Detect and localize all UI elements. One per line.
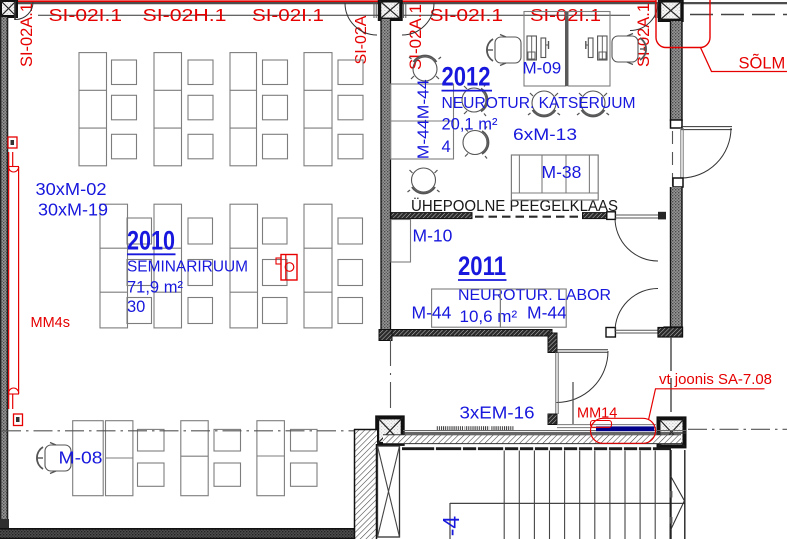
svg-text:SEMINARIRUUM: SEMINARIRUUM: [127, 259, 248, 276]
svg-text:M-10: M-10: [413, 226, 453, 246]
svg-text:SI-02I.1: SI-02I.1: [252, 5, 324, 25]
svg-text:SI-02I.1: SI-02I.1: [49, 5, 123, 25]
svg-text:MM4s: MM4s: [31, 315, 70, 331]
svg-text:30xM-19: 30xM-19: [38, 200, 108, 220]
svg-text:3xEM-16: 3xEM-16: [460, 403, 535, 423]
svg-text:SI-02I.1: SI-02I.1: [430, 5, 504, 25]
svg-text:M-38: M-38: [542, 162, 582, 182]
svg-text:SI-02A.1: SI-02A.1: [18, 3, 36, 67]
svg-text:-4: -4: [438, 516, 464, 537]
svg-text:10,6 m²: 10,6 m²: [460, 307, 518, 326]
svg-text:SI-02H.1: SI-02H.1: [143, 5, 227, 25]
svg-text:4: 4: [442, 138, 451, 156]
svg-text:M-08: M-08: [59, 448, 103, 468]
svg-text:30xM-02: 30xM-02: [36, 179, 107, 199]
svg-text:SÕLM 2: SÕLM 2: [739, 53, 787, 73]
svg-text:2012: 2012: [442, 62, 491, 92]
svg-text:2011: 2011: [458, 251, 506, 281]
svg-text:20,1 m²: 20,1 m²: [442, 116, 498, 134]
svg-text:MM14: MM14: [577, 406, 617, 422]
svg-text:vt joonis SA-7.08: vt joonis SA-7.08: [659, 371, 772, 388]
svg-text:M-44: M-44: [527, 303, 567, 323]
svg-text:M-09: M-09: [523, 59, 562, 78]
svg-text:SI-02A: SI-02A: [353, 15, 370, 64]
svg-text:M-44M-44: M-44M-44: [416, 79, 433, 159]
svg-text:6xM-13: 6xM-13: [513, 125, 577, 144]
svg-text:30: 30: [127, 298, 145, 316]
svg-text:71,9 m²: 71,9 m²: [127, 279, 183, 297]
svg-text:NEUROTUR. KATSERUUM: NEUROTUR. KATSERUUM: [442, 95, 636, 112]
svg-text:2010: 2010: [127, 226, 175, 256]
